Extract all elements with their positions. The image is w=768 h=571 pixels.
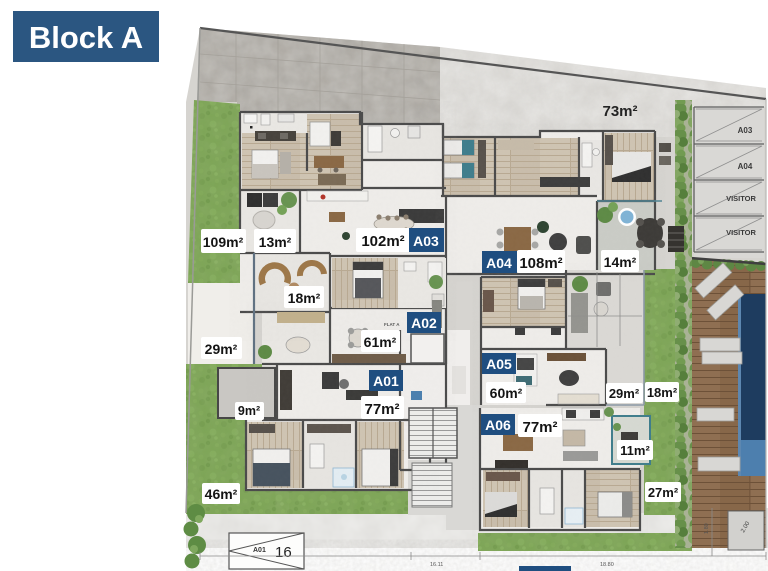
svg-text:109m²: 109m²: [203, 234, 244, 250]
svg-text:29m²: 29m²: [609, 386, 640, 401]
svg-text:VISITOR: VISITOR: [726, 228, 756, 237]
svg-text:46m²: 46m²: [205, 486, 238, 502]
svg-text:A05: A05: [486, 356, 512, 372]
svg-text:A04: A04: [738, 162, 753, 171]
svg-text:Block A: Block A: [29, 20, 143, 55]
svg-text:16.11: 16.11: [430, 562, 443, 568]
svg-text:14m²: 14m²: [604, 254, 637, 270]
svg-text:18m²: 18m²: [647, 385, 678, 400]
svg-text:1.80: 1.80: [704, 523, 710, 534]
svg-text:16: 16: [275, 544, 292, 561]
svg-text:18.80: 18.80: [600, 562, 614, 568]
svg-text:A04: A04: [486, 255, 512, 271]
svg-text:108m²: 108m²: [519, 255, 562, 272]
svg-text:27m²: 27m²: [648, 485, 679, 500]
svg-text:A06: A06: [485, 417, 511, 433]
svg-text:77m²: 77m²: [364, 401, 399, 418]
svg-text:61m²: 61m²: [364, 334, 397, 350]
svg-text:A01: A01: [253, 547, 266, 554]
svg-text:60m²: 60m²: [490, 385, 523, 401]
svg-text:9m²: 9m²: [238, 404, 260, 418]
svg-text:A03: A03: [413, 233, 439, 249]
svg-text:102m²: 102m²: [361, 233, 404, 250]
svg-text:VISITOR: VISITOR: [726, 194, 756, 203]
svg-text:13m²: 13m²: [259, 234, 292, 250]
svg-text:11m²: 11m²: [620, 443, 650, 458]
svg-text:29m²: 29m²: [205, 341, 238, 357]
svg-text:A02: A02: [411, 315, 437, 331]
svg-text:18m²: 18m²: [288, 290, 321, 306]
svg-text:A01: A01: [373, 373, 399, 389]
svg-text:A03: A03: [738, 126, 753, 135]
svg-text:73m²: 73m²: [602, 103, 637, 120]
svg-text:77m²: 77m²: [522, 419, 557, 436]
